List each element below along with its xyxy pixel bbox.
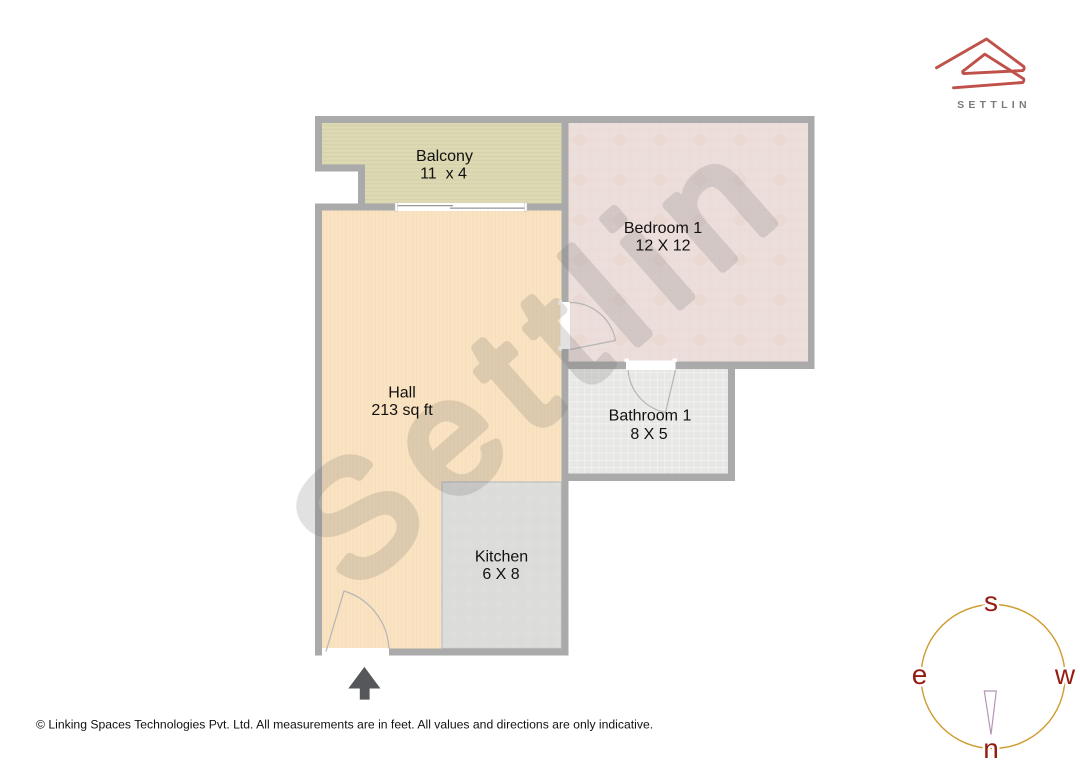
- svg-text:Balcony: Balcony: [416, 148, 473, 165]
- svg-text:Hall: Hall: [388, 385, 416, 402]
- svg-text:12 X 12: 12 X 12: [635, 238, 690, 255]
- svg-text:SETTLIN: SETTLIN: [957, 99, 1031, 111]
- svg-text:8 X 5: 8 X 5: [630, 426, 667, 443]
- svg-text:213 sq ft: 213 sq ft: [371, 402, 433, 419]
- svg-text:w: w: [1054, 659, 1076, 690]
- svg-text:Bathroom 1: Bathroom 1: [609, 408, 692, 425]
- svg-text:© Linking Spaces Technologies: © Linking Spaces Technologies Pvt. Ltd. …: [36, 718, 653, 732]
- svg-text:e: e: [912, 659, 928, 690]
- svg-text:6 X 8: 6 X 8: [482, 566, 519, 583]
- svg-text:s: s: [984, 586, 998, 617]
- svg-text:n: n: [983, 733, 999, 764]
- svg-text:11 x 4: 11 x 4: [420, 166, 467, 183]
- svg-text:Bedroom 1: Bedroom 1: [624, 220, 702, 237]
- svg-text:Kitchen: Kitchen: [475, 549, 528, 566]
